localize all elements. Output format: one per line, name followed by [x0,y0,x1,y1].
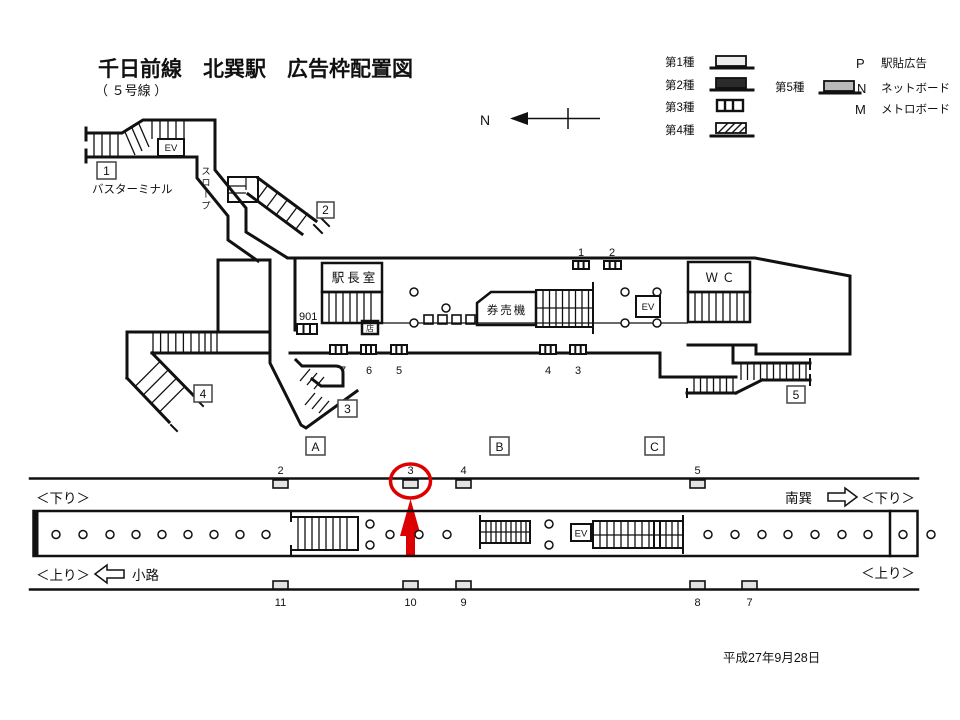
arrow-right-icon [828,488,857,506]
ticket-machine-label: 券売機 [487,303,528,317]
exit-2-number: 2 [322,203,329,217]
direction-up-left: ＜上り＞ [36,568,90,583]
ad-position-top-5: 5 [690,465,705,488]
wall-ad-bottom-5: 5 [391,345,407,377]
exit-5-number: 5 [793,388,800,402]
exit-1-marker: 1 [97,162,116,179]
slope-label: スロープ [197,166,211,212]
ad-901: 901 [297,311,317,334]
section-markers: A B C [306,437,664,455]
elevator-concourse: EV [636,296,660,317]
wall-ad-bottom-3-number: 3 [575,365,581,377]
platform-stairs-west [291,512,358,555]
elevator-platform-label: EV [575,529,588,540]
ad-position-bottom-11-number: 11 [275,597,286,609]
direction-down-left: ＜下り＞ [36,491,90,506]
station-office-label: 駅長室 [332,270,379,285]
exit-1-number: 1 [103,164,110,178]
wc-label: ＷＣ [705,271,738,285]
exit-3-marker: 3 [338,400,357,417]
legend-type5-icon [820,81,860,93]
ad-position-bottom-9-number: 9 [460,597,466,609]
ad-position-bottom-11: 11 [273,581,288,609]
next-station-left: 小路 [132,568,159,583]
legend-type5-label: 第5種 [775,80,805,94]
header: 千日前線 北巽駅 広告枠配置図 （ ５号線 ） [95,57,413,98]
direction-down-right: ＜下り＞ [861,491,915,506]
platform-escalator [480,516,530,548]
legend-type3-icon [717,100,743,111]
section-marker-c: C [650,440,659,454]
elevator-platform: EV [571,524,591,541]
ad-position-top-4: 4 [456,465,471,488]
north-compass: N [480,108,600,129]
ticket-machine-room: 券売機 [477,292,536,325]
concourse: 駅長室 店 901 券売機 [127,247,850,378]
legend-type4-label: 第4種 [665,123,695,137]
direction-up-right: ＜上り＞ [861,566,915,581]
ad-position-bottom-8: 8 [690,581,705,609]
section-marker-b: B [495,440,503,454]
section-marker-a: A [311,440,319,454]
exit-2-marker: 2 [317,202,334,218]
legend-type1-label: 第1種 [665,55,695,69]
next-station-right: 南巽 [785,491,812,506]
ad-position-bottom-10: 10 [403,581,418,609]
arrow-left-icon [95,565,124,583]
legend-type2-icon [711,78,753,90]
ad-position-top-4-number: 4 [460,465,466,477]
west-room [218,260,270,332]
wall-ad-bottom-6: 6 [361,345,376,377]
legend-desc-m: メトロボード [881,103,950,116]
legend: 第1種 第2種 第3種 第4種 第5種 P 駅貼広告 N ネットボード M メト… [665,55,950,137]
wall-ad-bottom-6-number: 6 [366,365,372,377]
legend-type3-icon-label: 第3種 [665,100,695,114]
legend-desc-p: 駅貼広告 [881,56,927,70]
exit-5-marker: 5 [787,386,805,403]
compass-arrow-icon [510,112,528,125]
wall-ad-bottom-5-number: 5 [396,365,402,377]
line-subtitle: （ ５号線 ） [95,83,167,98]
ad-position-top-5-number: 5 [694,465,700,477]
elevator-entrance: EV [158,139,184,156]
bus-terminal-label: バスターミナル [92,183,173,196]
legend-type2-label: 第2種 [665,78,695,92]
highlight-arrow-icon [400,499,421,557]
wc-room: ＷＣ [688,262,750,322]
exit-3-number: 3 [344,402,351,416]
legend-type1-icon [711,56,753,68]
elevator-entrance-label: EV [165,143,178,154]
legend-code-n: N [857,81,866,96]
ad-position-top-2-number: 2 [277,465,283,477]
exit-4-marker: 4 [194,385,212,402]
ad-position-top-3-number: 3 [407,465,413,477]
station-office-room: 駅長室 [322,263,382,323]
wall-ad-bottom-3: 3 [570,345,586,377]
wall-ad-bottom-4-number: 4 [545,365,551,377]
exit-4-number: 4 [200,387,207,401]
ad-position-top-3: 3 [403,465,418,488]
legend-code-p: P [856,56,865,71]
ad-position-bottom-7-number: 7 [746,597,752,609]
ad-901-label: 901 [299,311,317,323]
ad-position-bottom-8-number: 8 [694,597,700,609]
ad-position-bottom-7: 7 [742,581,757,609]
platform-west-end [34,511,39,556]
compass-label: N [480,112,490,128]
legend-desc-n: ネットボード [881,82,950,95]
wall-ad-bottom-4: 4 [540,345,556,377]
elevator-concourse-label: EV [642,302,655,313]
ad-position-bottom-10-number: 10 [404,597,416,609]
legend-code-m: M [855,102,866,117]
platform-level: 2 3 4 5 ＜下り＞ 南巽 ＜下り＞ ＜上り＞ 小路 ＜上り＞ [30,464,935,609]
ad-position-top-2: 2 [273,465,288,488]
exit-4-stairs: 4 [127,353,212,431]
station-ad-layout-diagram: 千日前線 北巽駅 広告枠配置図 （ ５号線 ） 第1種 第2種 第3種 第4種 … [0,0,960,720]
center-stairs [536,283,593,333]
platform-pillars [52,520,935,549]
page-title: 千日前線 北巽駅 広告枠配置図 [98,57,413,81]
legend-type4-icon [711,123,753,136]
ad-position-bottom-9: 9 [456,581,471,609]
kiosk-label: 店 [366,323,374,333]
wall-ad-top-2-number: 2 [609,247,615,259]
wall-ad-top-1-number: 1 [578,247,584,259]
platform-stairs-east [593,516,683,553]
date-label: 平成27年9月28日 [723,651,820,665]
slope-outer-wall [215,120,286,257]
